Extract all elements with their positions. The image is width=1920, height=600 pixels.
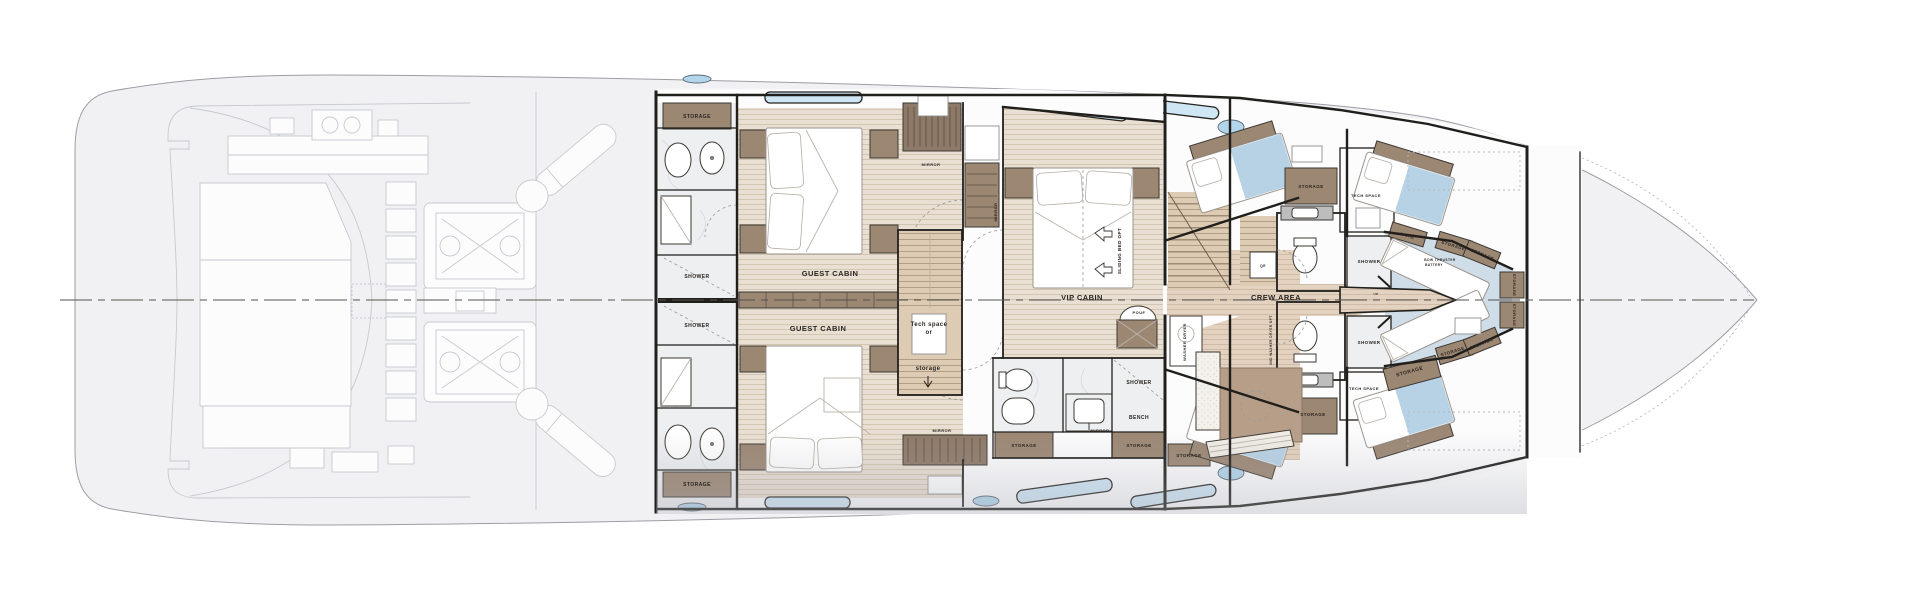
nightstand: [740, 225, 766, 253]
deck-hatch: [1455, 318, 1481, 334]
label-storage-crew-mess: STORAGE: [1176, 453, 1201, 458]
toilet-icon: [1293, 321, 1317, 351]
window-guest-top: [765, 92, 862, 103]
label-2nd-washer-opt: 2ND WASHER DRYER OPT: [1269, 315, 1273, 365]
label-pouf: POUF: [1133, 310, 1146, 315]
label-tech-space-line3: storage: [916, 366, 941, 372]
label-shower-crew-top: SHOWER: [1358, 259, 1381, 264]
label-tech-space-top: TECH SPACE: [1351, 193, 1381, 198]
floor-shadow: [656, 430, 1527, 514]
label-shower-guest-bottom: SHOWER: [684, 323, 709, 329]
label-storage-bow-3: STORAGE: [1512, 274, 1517, 297]
label-crew-area: CREW AREA: [1251, 293, 1301, 302]
label-shower-guest-top: SHOWER: [684, 274, 709, 280]
storage-cabinet: [1500, 272, 1524, 298]
label-storage-crew-top: STORAGE: [1298, 184, 1323, 189]
pillow: [767, 132, 804, 189]
label-mirror-guest-bottom: MIRROR: [933, 428, 952, 433]
label-storage-aft-bath-bottom: STORAGE: [683, 482, 711, 488]
label-storage-aft-bath-top: STORAGE: [683, 114, 711, 120]
cabinet: [870, 346, 898, 372]
label-mirror-guest-top: MIRROR: [922, 162, 941, 167]
label-storage-vip-right: STORAGE: [1126, 443, 1151, 448]
engine-port: [424, 203, 536, 289]
cabinet: [870, 225, 898, 253]
label-tech-space-line1: Tech space: [911, 322, 948, 328]
deck-hatch: [1292, 146, 1322, 162]
nightstand: [740, 130, 766, 158]
deck-hatch: [918, 96, 948, 116]
label-shower-vip: SHOWER: [1126, 380, 1151, 386]
toilet-icon: [1004, 369, 1032, 391]
label-up: UP: [1373, 292, 1378, 296]
label-qe: QE: [1260, 264, 1266, 268]
bow-void: [1527, 146, 1582, 458]
pillow: [767, 193, 804, 250]
nightstand: [1005, 168, 1033, 198]
label-tech-space-line2: or: [926, 330, 933, 336]
label-washer-dryer: WASHER DRYER: [1182, 323, 1187, 361]
pillow: [1085, 171, 1132, 206]
label-guest-cabin-bottom: GUEST CABIN: [790, 324, 847, 333]
label-storage-vip-left: STORAGE: [1011, 443, 1036, 448]
label-mirror-vip: MIRROR: [1091, 428, 1110, 433]
label-storage-bow-4: STORAGE: [1512, 304, 1517, 327]
washbasin: [1074, 399, 1104, 423]
bidet-icon: [1002, 398, 1034, 424]
label-sliding-bed-opt: SLIDING BED OPT: [1117, 228, 1122, 274]
floorplan-stage: STORAGESHOWERSHOWERSTORAGEGUEST CABINGUE…: [0, 0, 1920, 600]
porthole-icon: [683, 75, 711, 83]
toilet-icon: [1293, 243, 1317, 273]
label-bow-thruster-1: BOW THRUSTER: [1424, 258, 1456, 262]
label-storage-crew-bottom: STORAGE: [1300, 412, 1325, 417]
label-guest-cabin-top: GUEST CABIN: [802, 269, 859, 278]
toilet-icon: [665, 143, 691, 177]
yacht-lower-deck-plan: STORAGESHOWERSHOWERSTORAGEGUEST CABINGUE…: [0, 0, 1920, 600]
nightstand: [1131, 168, 1159, 198]
label-mirror-vip-entry: MIRROR: [993, 203, 998, 222]
pillow: [1036, 170, 1083, 205]
cabinet: [870, 130, 898, 158]
nightstand: [740, 346, 766, 372]
label-bow-thruster-2: BATTERY: [1425, 263, 1443, 267]
label-tech-space-bottom: TECH SPACE: [1349, 386, 1379, 391]
galley-counter: [1196, 352, 1220, 430]
storage-cabinet: [1500, 302, 1524, 328]
label-vip-cabin: VIP CABIN: [1061, 293, 1103, 302]
closet: [965, 126, 999, 160]
washbasin: [1292, 208, 1318, 218]
label-bench-vip: BENCH: [1129, 415, 1149, 421]
label-shower-crew-bottom: SHOWER: [1358, 340, 1381, 345]
engine-starboard: [424, 322, 536, 402]
